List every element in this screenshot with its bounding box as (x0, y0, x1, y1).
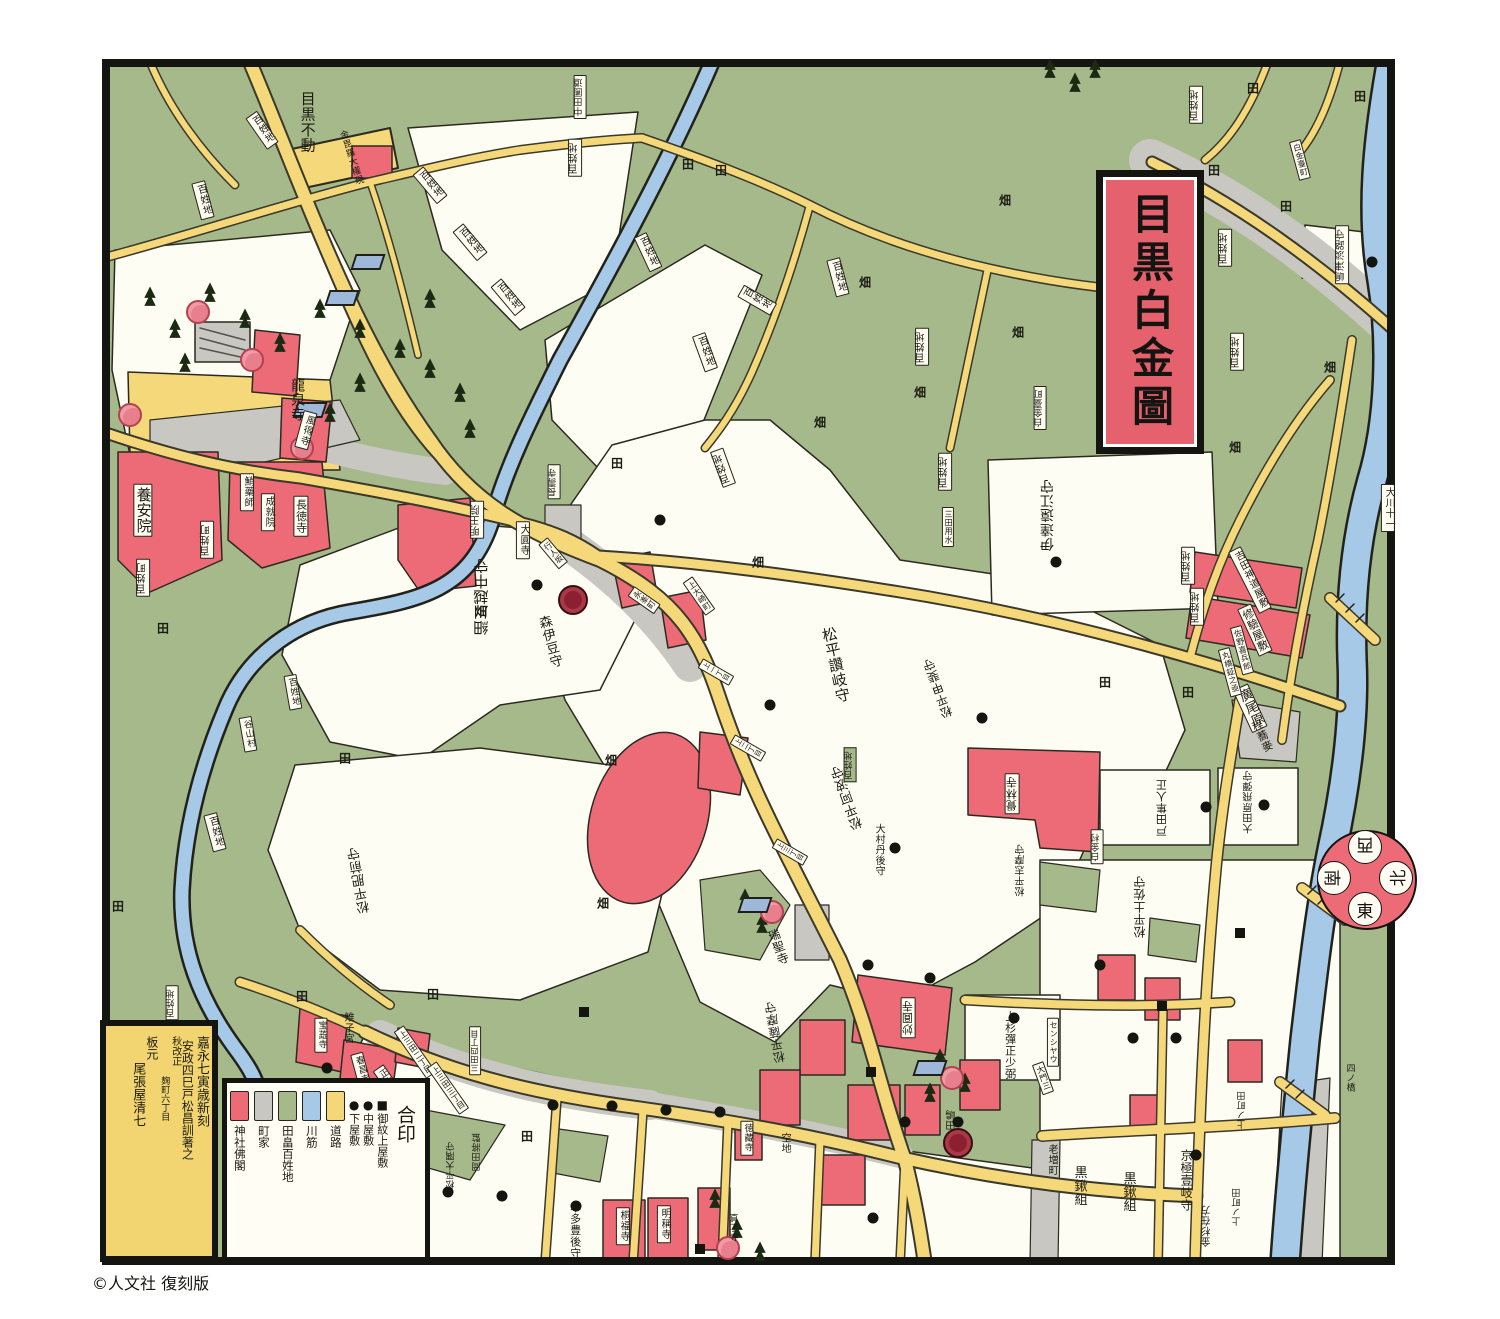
pine-tree-icon: ▲▲ (424, 359, 436, 376)
map-label: 百姓地 (1230, 333, 1244, 371)
map-label: 細川越中守 (474, 558, 489, 636)
pine-tree-icon: ▲▲ (454, 383, 466, 400)
nakayashiki-dot-icon (1095, 960, 1106, 971)
compass-left: 南 (1317, 861, 1351, 895)
field-mark: 畑 (1229, 439, 1241, 456)
legend-swatch-label: 田畠百姓地 (281, 1125, 293, 1183)
map-label: 百姓地 (1181, 547, 1195, 585)
pine-tree-icon: ▲▲ (394, 339, 406, 356)
map-label: 中田圃道 (573, 75, 586, 119)
map-label: 真了寺 (727, 1214, 736, 1243)
map-label: 金杉在方 (1203, 1205, 1213, 1247)
pine-tree-icon: ▲▲ (204, 283, 216, 300)
map-label: 三田用水 (942, 507, 954, 547)
nakayashiki-dot-icon (322, 1063, 333, 1074)
map-label: 大圓寺 (516, 521, 530, 559)
nakayashiki-dot-icon (925, 973, 936, 984)
map-label: 大村丹後守 (873, 824, 883, 877)
colophon-column: 尾張屋清七 (131, 1062, 145, 1246)
map-label: 上ノ町田 (1233, 1188, 1242, 1226)
temple-roof-icon (324, 290, 359, 306)
field-mark: 畑 (1324, 359, 1336, 376)
map-label: 覺林寺 (1004, 774, 1019, 815)
nakayashiki-dot-icon (1201, 802, 1212, 813)
field-mark: 畑 (1012, 324, 1024, 341)
pine-tree-icon: ▲▲ (424, 289, 436, 306)
map-label: 黒鍬組 (1121, 1172, 1134, 1213)
map-label: 三田四丁目 (469, 1027, 481, 1076)
legend-swatch-label: 道路 (329, 1125, 341, 1148)
pine-tree-icon: ▲▲ (354, 319, 366, 336)
map-label: 長徳寺 (293, 496, 308, 537)
map-label: 百姓地 (915, 328, 929, 366)
temple-roof-icon (737, 897, 772, 913)
field-mark: 田 (1247, 80, 1259, 97)
pine-tree-icon: ▲▲ (924, 1083, 936, 1100)
legend-title: 合印 (392, 1105, 419, 1249)
pine-tree-icon: ▲▲ (354, 373, 366, 390)
pine-tree-icon: ▲▲ (314, 299, 326, 316)
pine-tree-icon: ▲▲ (709, 1189, 721, 1206)
nakayashiki-dot-icon (1051, 557, 1062, 568)
map-label: 黒鍬組 (1072, 1166, 1085, 1207)
map-label: 百姓地 (568, 139, 582, 177)
field-mark: 田 (339, 750, 351, 767)
map-label: 松平土佐守 (1134, 876, 1146, 939)
nakayashiki-dot-icon (765, 700, 776, 711)
map-label: 鮹藥師 (240, 473, 254, 511)
pine-tree-icon: ▲▲ (1089, 59, 1101, 76)
map-label: 百姓町 (136, 559, 150, 597)
dot-symbol-icon: ● (349, 1099, 359, 1111)
legend-color-chip (302, 1091, 321, 1121)
map-label: 宝蕋寺 (314, 1018, 327, 1053)
kamiyashiki-square-icon (1235, 928, 1245, 938)
temple-roof-icon (350, 254, 385, 270)
cherry-blossom-icon (118, 403, 142, 427)
map-label: 空地 (779, 1133, 789, 1154)
map-label: 明稱寺 (657, 1205, 671, 1243)
nakayashiki-dot-icon (443, 1187, 454, 1198)
legend-color-chip (326, 1091, 345, 1121)
field-mark: 畑 (814, 414, 826, 431)
map-label: 長壽寺 (547, 465, 560, 500)
field-mark: 畑 (605, 752, 617, 769)
map-label: 目黒不動 (299, 91, 314, 153)
kamiyashiki-square-icon (866, 1067, 876, 1077)
nakayashiki-dot-icon (655, 515, 666, 526)
copyright-note: ©人文社 復刻版 (92, 1270, 209, 1294)
field-mark: 田 (427, 986, 439, 1003)
field-mark: 田 (1182, 684, 1194, 701)
cherry-blossom-icon (186, 300, 210, 324)
map-label: 京極壹岐守 (1180, 1149, 1192, 1212)
pine-tree-icon: ▲▲ (169, 319, 181, 336)
field-mark: 畑 (999, 192, 1011, 209)
colophon-column: 秋改正 (169, 1036, 180, 1246)
square-symbol-icon: ■ (377, 1099, 388, 1111)
field-mark: 田 (682, 156, 694, 173)
field-mark: 田 (1280, 198, 1292, 215)
colophon-box: 嘉永七寅歳新刻安政四巳戸松昌訓著之秋改正麹町六丁目板元尾張屋清七 (100, 1020, 218, 1262)
nakayashiki-dot-icon (863, 960, 874, 971)
family-crest-icon (558, 585, 588, 615)
compass-right: 北 (1379, 861, 1413, 895)
pine-tree-icon: ▲▲ (1044, 59, 1056, 76)
map-label: 老増町 (1046, 1144, 1056, 1176)
legend-swatches: 道路川筋田畠百姓地町家神社佛閣 (230, 1091, 345, 1249)
map-label: 徳藏寺 (740, 1121, 753, 1156)
nakayashiki-dot-icon (1191, 1150, 1202, 1161)
legend-symbol-label: 中屋敷 (363, 1113, 374, 1146)
field-mark: 田 (1208, 162, 1220, 179)
legend-symbol-item: ●下屋敷 (349, 1099, 360, 1249)
kamiyashiki-square-icon (695, 1244, 705, 1254)
nakayashiki-dot-icon (1128, 1033, 1139, 1044)
pine-tree-icon: ▲▲ (754, 1242, 766, 1259)
nakayashiki-dot-icon (868, 1213, 879, 1224)
nakayashiki-dot-icon (571, 1201, 582, 1212)
map-label: 大川十一 (1381, 484, 1395, 532)
legend-swatch-label: 町家 (257, 1125, 269, 1148)
legend-color-chip (254, 1091, 273, 1121)
compass-bottom: 東 (1348, 892, 1382, 926)
map-label: 白金臺町 (1033, 386, 1046, 430)
pine-tree-icon: ▲▲ (144, 287, 156, 304)
map-label: センシヤウ (1047, 1018, 1059, 1067)
dot-symbol-icon: ● (363, 1099, 373, 1111)
field-mark: 畑 (752, 554, 764, 571)
legend-swatch-item: 川筋 (302, 1091, 321, 1249)
nakayashiki-dot-icon (532, 580, 543, 591)
nakayashiki-dot-icon (715, 1107, 726, 1118)
legend-symbol-item: ●中屋敷 (363, 1099, 374, 1249)
map-label: 上ノ町田 (1238, 1091, 1247, 1129)
pine-tree-icon: ▲▲ (274, 333, 286, 350)
field-mark: 畑 (914, 384, 926, 401)
legend-symbol-label: 下屋敷 (349, 1113, 360, 1146)
map-label: 戸田隼人正 (1156, 779, 1167, 837)
nakayashiki-dot-icon (977, 713, 988, 724)
legend-color-chip (230, 1091, 249, 1121)
map-label: 四ノ橋 (1344, 1064, 1353, 1093)
map-label: 松平大隅守 (447, 1141, 456, 1189)
map-label: 妙圓寺 (900, 998, 915, 1039)
legend-swatch-label: 神社佛閣 (233, 1125, 245, 1171)
map-label: 百姓地 (1190, 588, 1204, 626)
legend-swatch-item: 町家 (254, 1091, 273, 1249)
nakayashiki-dot-icon (497, 1191, 508, 1202)
field-mark: 畑 (859, 274, 871, 291)
legend-swatch-label: 川筋 (305, 1125, 317, 1148)
nakayashiki-dot-icon (548, 1100, 559, 1111)
nakayashiki-dot-icon (953, 1117, 964, 1128)
map-label: 百姓地 (938, 453, 952, 491)
cherry-blossom-icon (240, 348, 264, 372)
legend-swatch-item: 田畠百姓地 (278, 1091, 297, 1249)
colophon-column: 安政四巳戸松昌訓著之 (181, 1040, 194, 1246)
legend-symbol-item: ■御紋上屋敷 (377, 1099, 388, 1249)
temple-roof-icon (912, 1060, 947, 1076)
map-label: 大田原飛彈守 (1245, 771, 1255, 834)
map-label: 明王院 (470, 501, 484, 539)
legend-swatch-item: 神社佛閣 (230, 1091, 249, 1249)
colophon-column: 麹町六丁目 (159, 1076, 168, 1246)
map-label: 百姓地 (843, 748, 856, 783)
nakayashiki-dot-icon (1367, 257, 1378, 268)
field-mark: 田 (521, 1128, 533, 1145)
field-mark: 田 (1354, 88, 1366, 105)
field-mark: 田 (157, 620, 169, 637)
colophon-column: 板元 (145, 1036, 158, 1246)
kamiyashiki-square-icon (579, 1007, 589, 1017)
family-crest-icon (943, 1128, 973, 1158)
map-label: 岡田將監 (473, 1133, 482, 1171)
pine-tree-icon: ▲▲ (1069, 73, 1081, 90)
nakayashiki-dot-icon (661, 1105, 672, 1116)
nakayashiki-dot-icon (890, 843, 901, 854)
map-legend: 合印 ■御紋上屋敷●中屋敷●下屋敷 道路川筋田畠百姓地町家神社佛閣 (222, 1078, 430, 1262)
field-mark: 田 (611, 455, 623, 472)
map-title: 目黒白金圖 (1120, 192, 1181, 432)
nakayashiki-dot-icon (607, 1101, 618, 1112)
map-title-cartouche: 目黒白金圖 (1096, 170, 1204, 454)
map-label: 雉子宮 (342, 1012, 352, 1044)
map-label: 百姓地 (1218, 229, 1232, 267)
legend-swatch-item: 道路 (326, 1091, 345, 1249)
colophon-column: 嘉永七寅歳新刻 (194, 1036, 208, 1246)
compass-top: 西 (1348, 830, 1382, 864)
legend-symbol-label: 御紋上屋敷 (377, 1113, 388, 1168)
pine-tree-icon: ▲▲ (464, 419, 476, 436)
legend-color-chip (278, 1091, 297, 1121)
pine-tree-icon: ▲▲ (239, 309, 251, 326)
nakayashiki-dot-icon (900, 1117, 911, 1128)
map-label: 成就院 (261, 493, 275, 531)
map-label: 百姓地 (1189, 86, 1203, 124)
kamiyashiki-square-icon (1157, 1001, 1167, 1011)
field-mark: 田 (112, 898, 124, 915)
map-label: 百姓地 (165, 986, 178, 1021)
map-label: 松平志摩守 (1017, 844, 1027, 897)
field-mark: 田 (1099, 674, 1111, 691)
map-label: 養安院 (133, 484, 152, 537)
nakayashiki-dot-icon (1259, 800, 1270, 811)
field-mark: 畑 (597, 895, 609, 912)
edo-map-meguro-shirokane: { "title": { "text": "目黒白金圖" }, "copyrig… (0, 0, 1500, 1319)
legend-symbols: ■御紋上屋敷●中屋敷●下屋敷 (349, 1099, 388, 1249)
field-mark: 田 (715, 162, 727, 179)
map-label: 白金村 (1090, 830, 1103, 865)
map-label: 桐福寺 (616, 1207, 630, 1245)
pine-tree-icon: ▲▲ (179, 353, 191, 370)
nakayashiki-dot-icon (1171, 1033, 1182, 1044)
map-label: 伊達遠江守 (1041, 479, 1055, 552)
map-label: 嶋津淡路守 (1335, 226, 1349, 285)
field-mark: 田 (296, 988, 308, 1005)
nakayashiki-dot-icon (1009, 1013, 1020, 1024)
map-label: 百姓町 (200, 521, 214, 559)
